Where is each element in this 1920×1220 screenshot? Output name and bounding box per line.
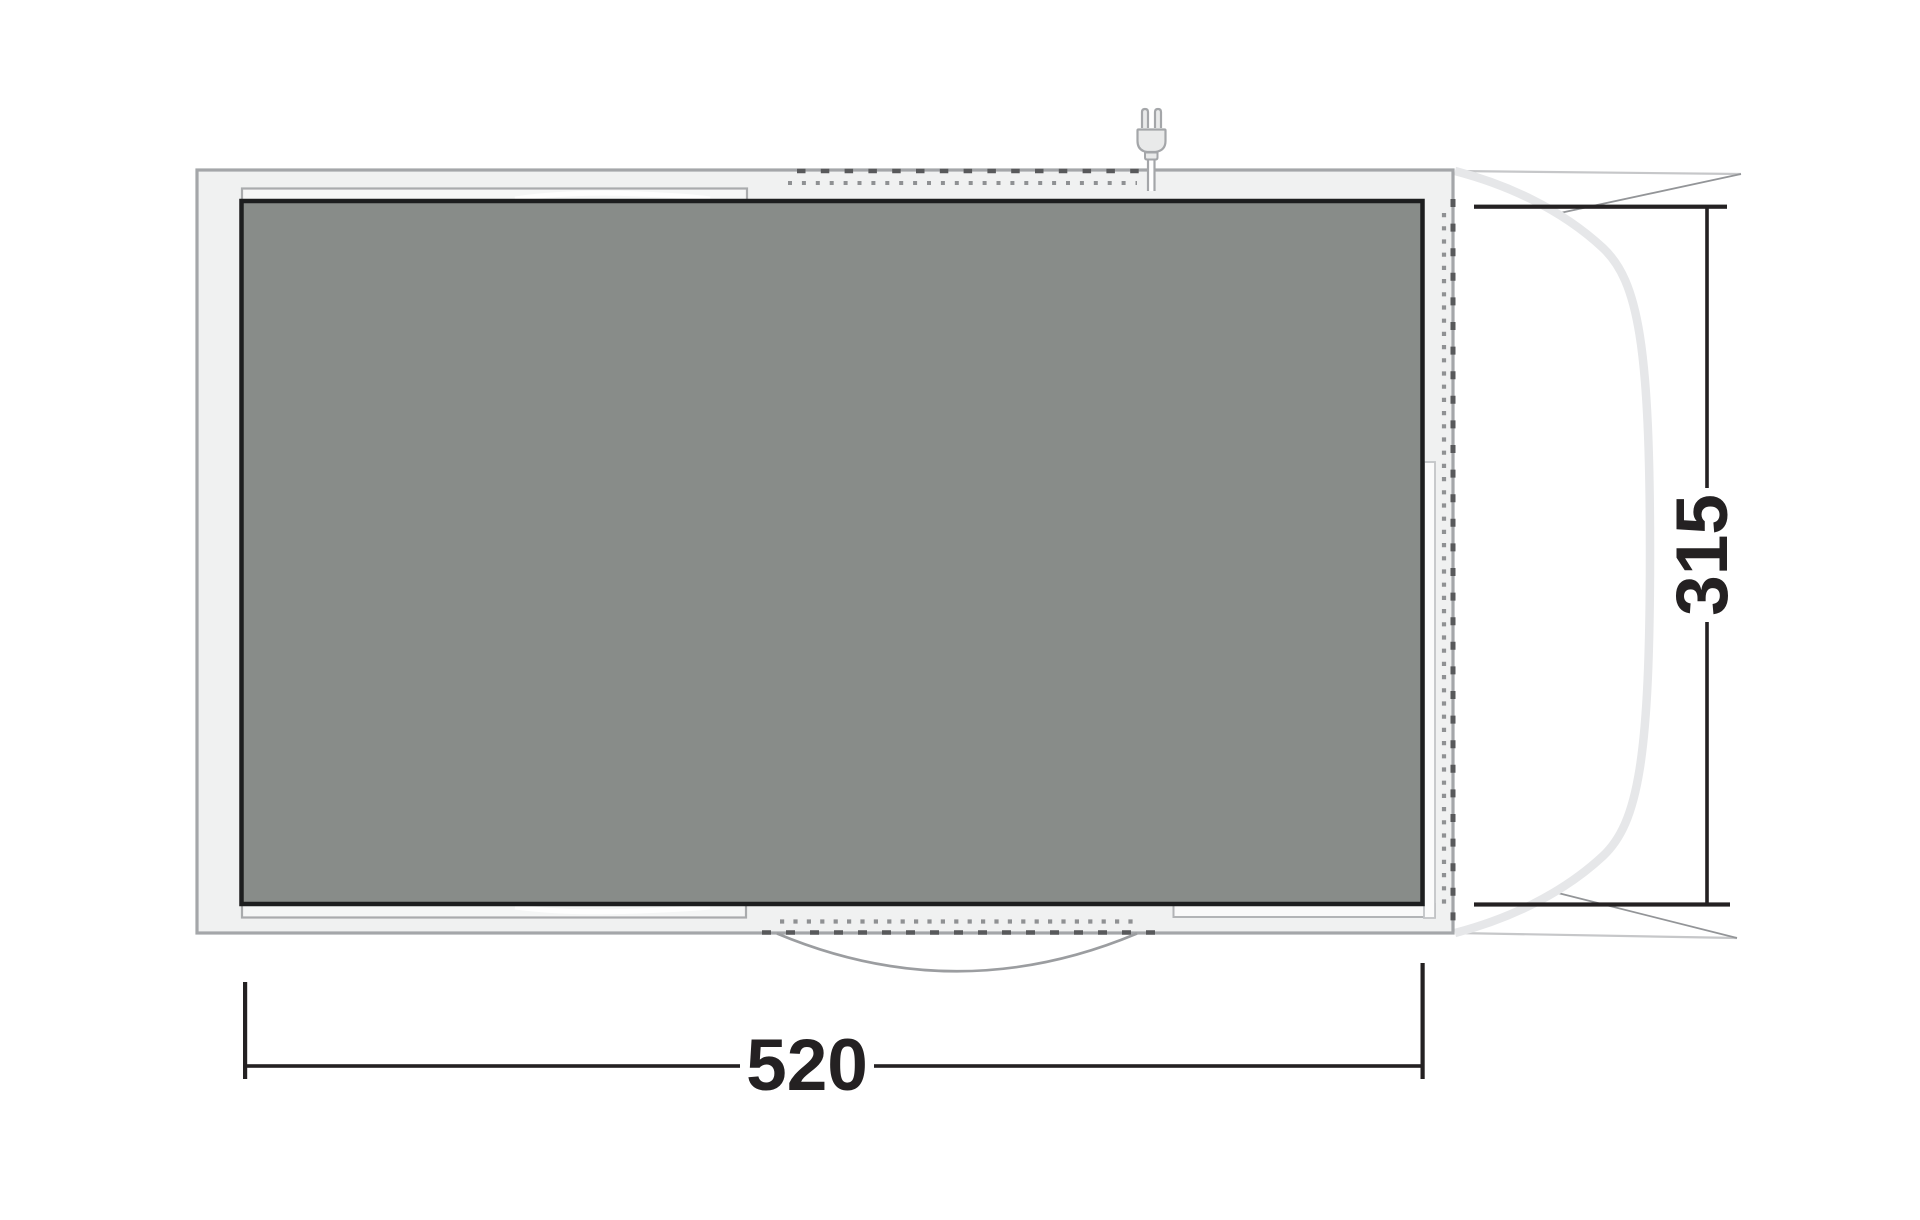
svg-text:315: 315 [1662,494,1743,616]
svg-text:520: 520 [746,1025,868,1106]
